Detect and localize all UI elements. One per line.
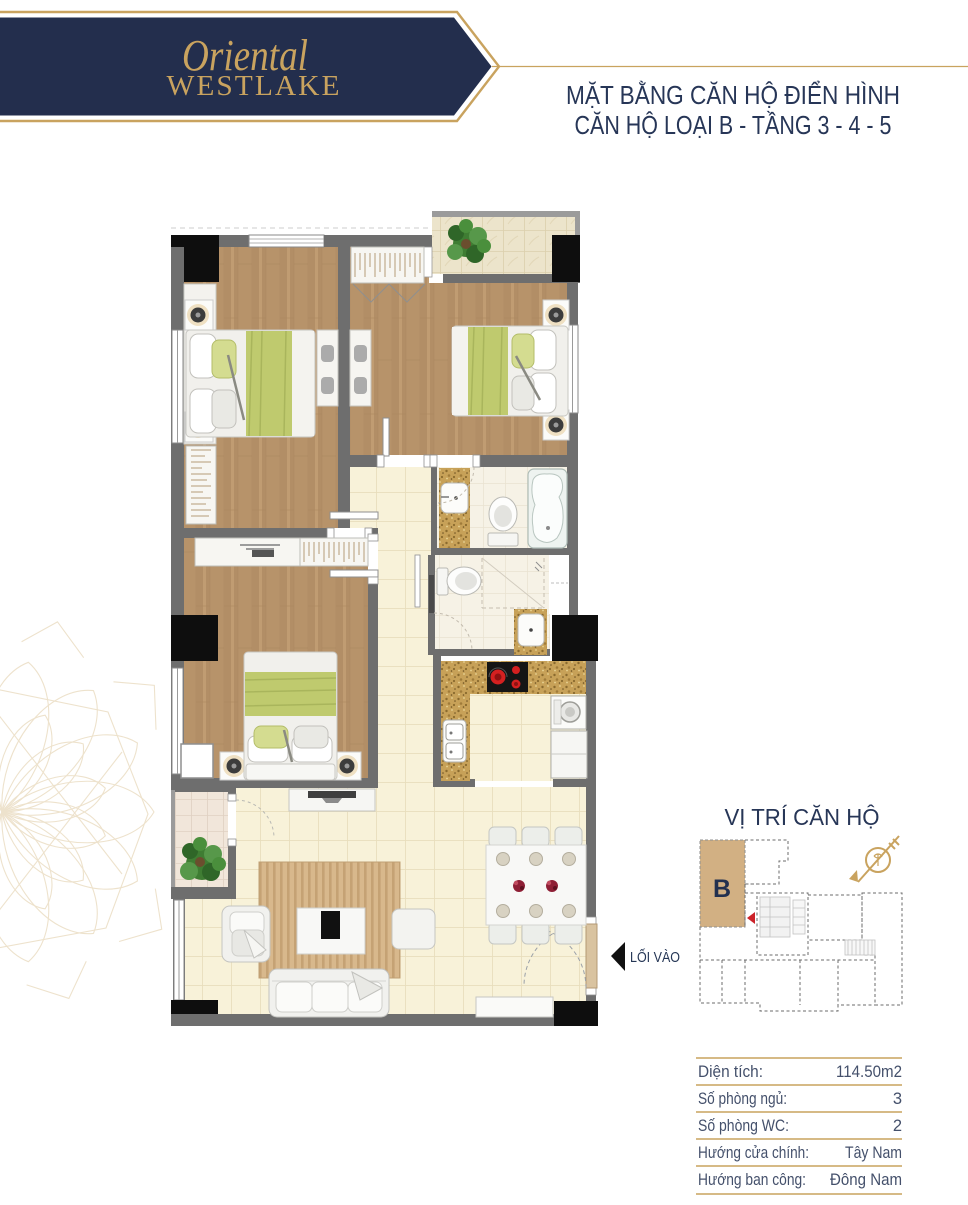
svg-text:MẶT BẰNG CĂN HỘ ĐIỂN HÌNH: MẶT BẰNG CĂN HỘ ĐIỂN HÌNH [566, 80, 900, 110]
svg-text:Hướng ban công:: Hướng ban công: [698, 1171, 806, 1189]
svg-text:Số phòng WC:: Số phòng WC: [698, 1117, 789, 1135]
svg-text:Số phòng ngủ:: Số phòng ngủ: [698, 1090, 787, 1108]
svg-text:114.50m2: 114.50m2 [836, 1063, 902, 1081]
svg-text:2: 2 [893, 1117, 902, 1135]
svg-text:Diện tích:: Diện tích: [698, 1063, 763, 1081]
svg-text:Đông Nam: Đông Nam [830, 1171, 902, 1189]
svg-text:3: 3 [893, 1090, 902, 1108]
svg-text:Tây Nam: Tây Nam [845, 1144, 902, 1162]
svg-text:WESTLAKE: WESTLAKE [167, 70, 342, 102]
svg-text:LỐI VÀO: LỐI VÀO [630, 948, 680, 966]
svg-text:B: B [713, 875, 731, 903]
svg-text:VỊ TRÍ CĂN HỘ: VỊ TRÍ CĂN HỘ [725, 803, 880, 830]
svg-text:CĂN HỘ LOẠI B - TẦNG 3 - 4 - 5: CĂN HỘ LOẠI B - TẦNG 3 - 4 - 5 [575, 110, 892, 140]
svg-text:Hướng cửa chính:: Hướng cửa chính: [698, 1144, 809, 1162]
